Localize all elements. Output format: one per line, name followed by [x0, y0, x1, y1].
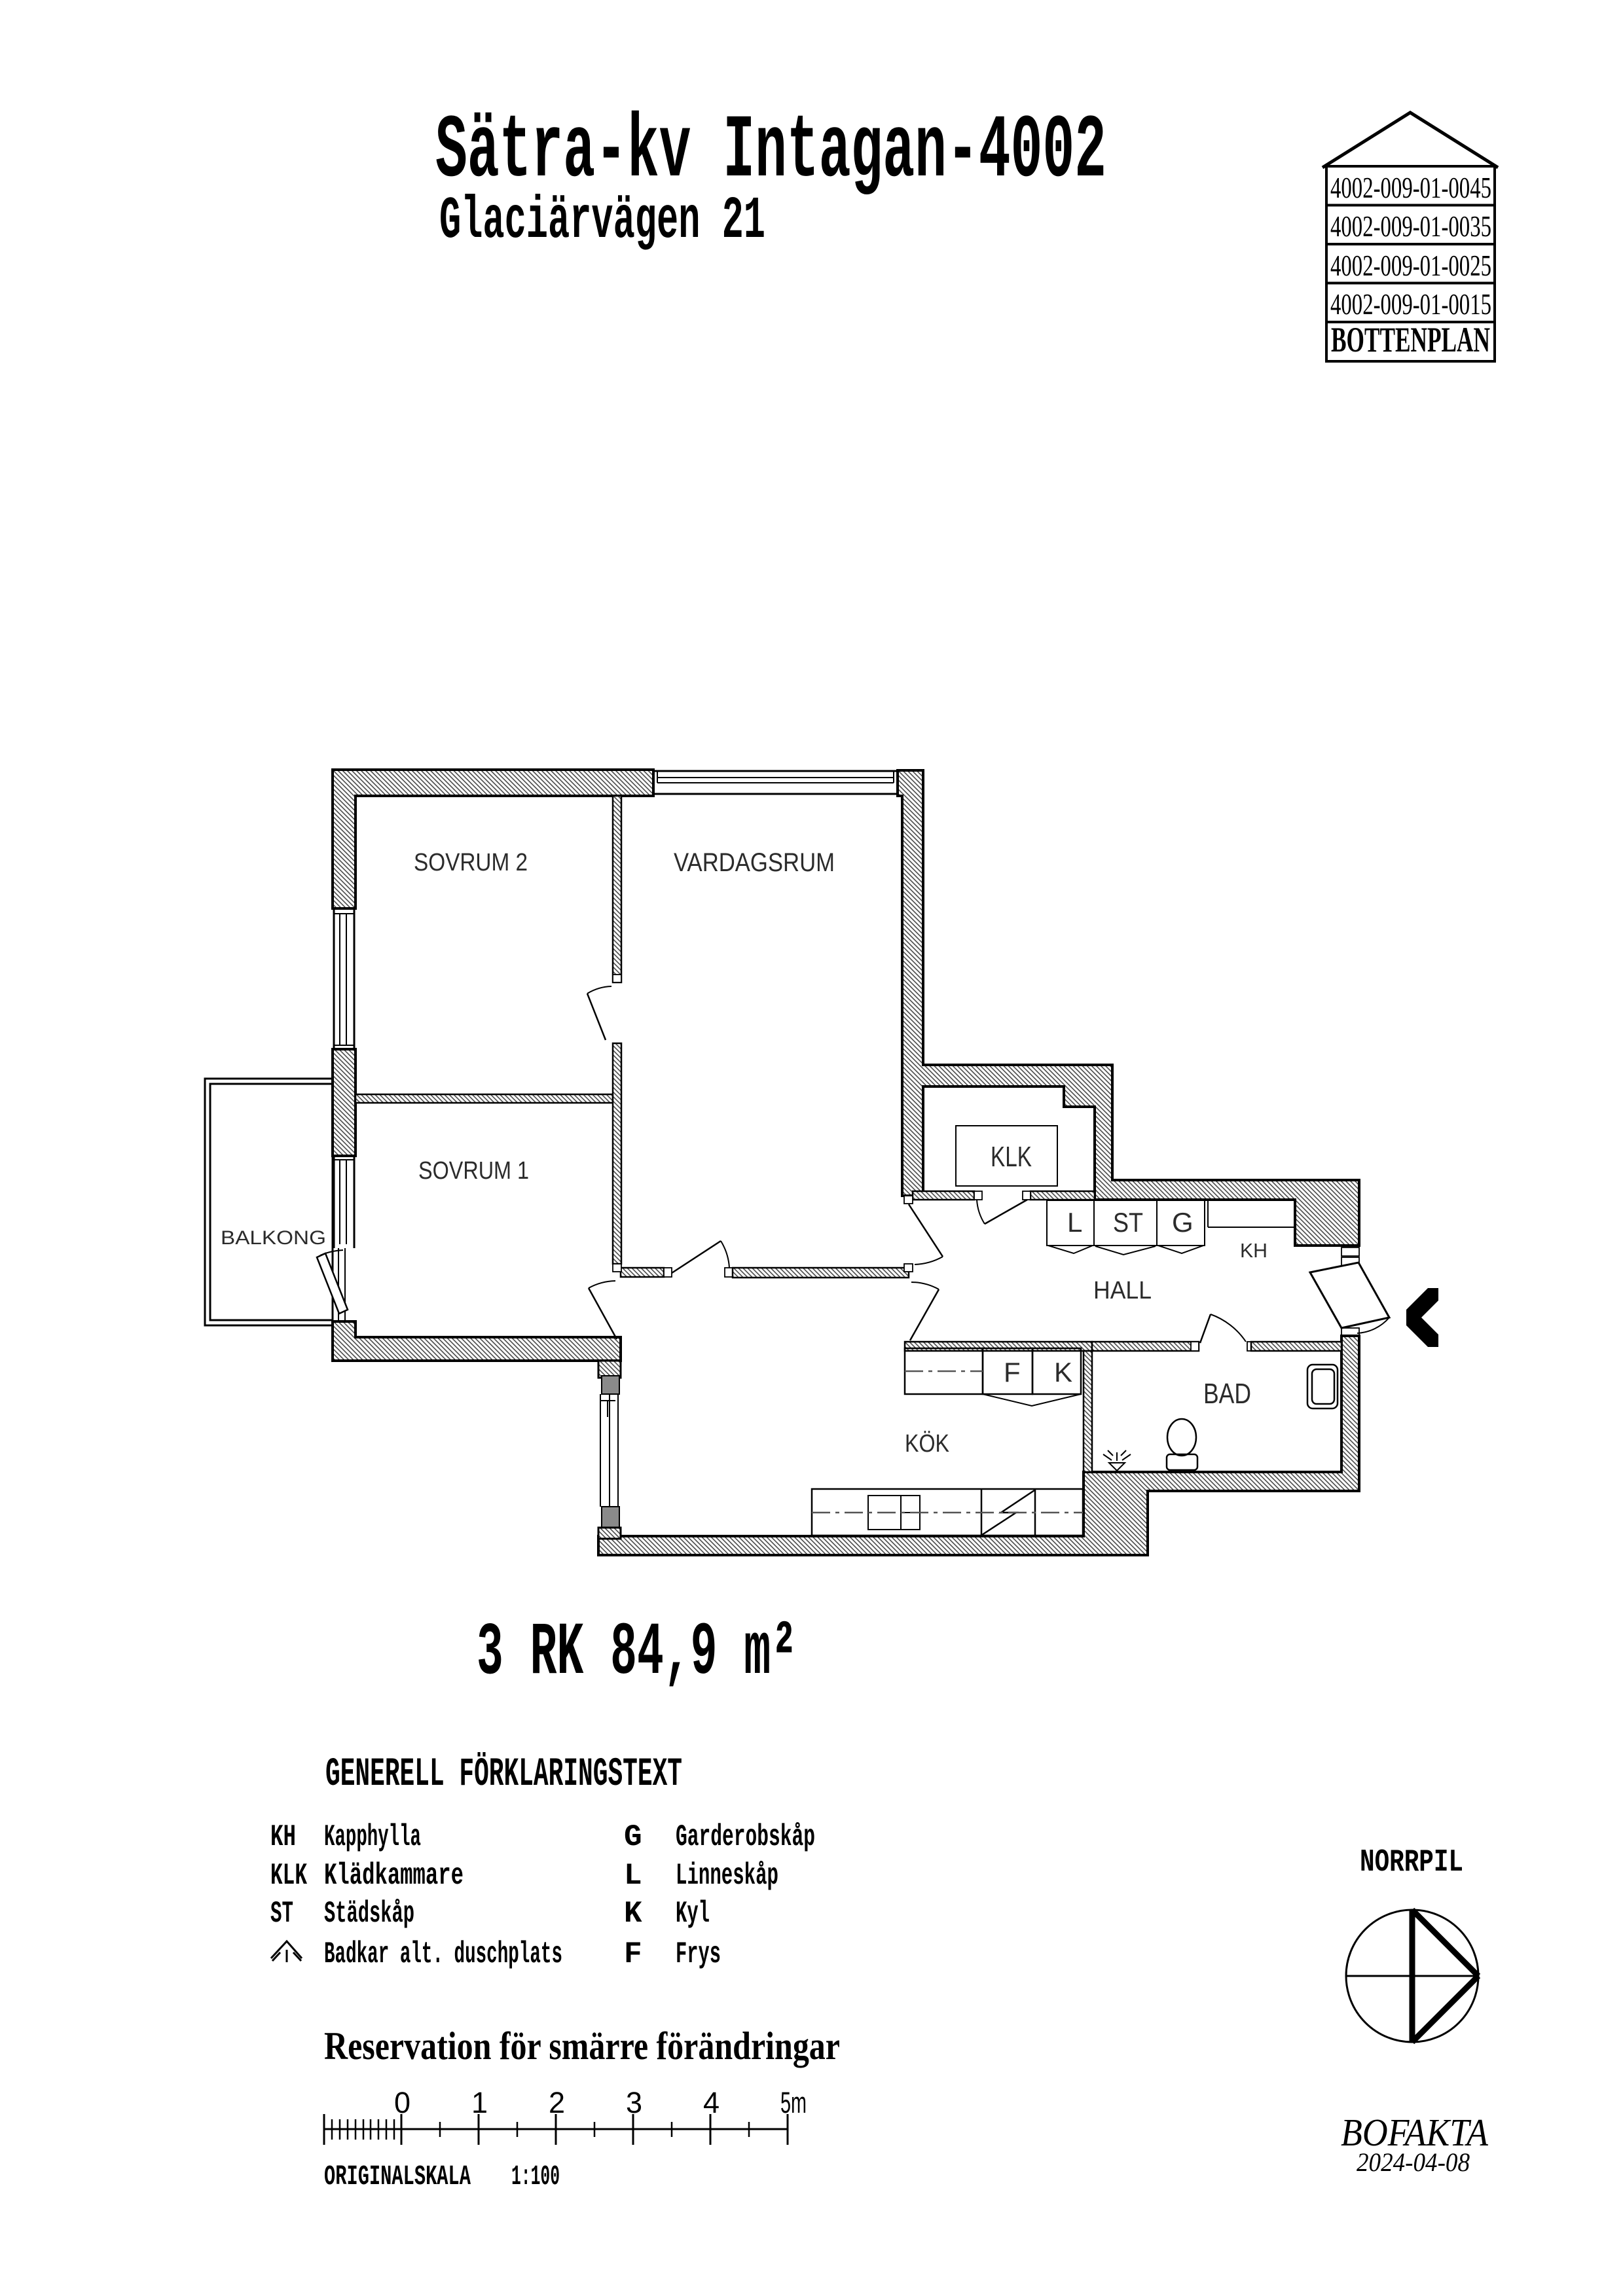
- svg-text:Klädkammare: Klädkammare: [324, 1859, 464, 1893]
- svg-text:BAD: BAD: [1203, 1378, 1251, 1410]
- svg-text:BOTTENPLAN: BOTTENPLAN: [1331, 320, 1490, 359]
- svg-text:K: K: [1054, 1357, 1072, 1388]
- svg-text:GENERELL FÖRKLARINGSTEXT: GENERELL FÖRKLARINGSTEXT: [325, 1752, 682, 1797]
- svg-text:KÖK: KÖK: [905, 1430, 949, 1458]
- svg-text:Reservation för smärre förändr: Reservation för smärre förändringar: [324, 2024, 840, 2068]
- svg-text:Kyl: Kyl: [676, 1897, 710, 1931]
- svg-text:KLK: KLK: [991, 1141, 1032, 1173]
- svg-text:F: F: [1004, 1357, 1021, 1388]
- svg-text:2: 2: [549, 2086, 565, 2119]
- svg-text:3: 3: [626, 2086, 642, 2119]
- svg-text:HALL: HALL: [1093, 1277, 1152, 1304]
- svg-text:Städskåp: Städskåp: [324, 1897, 414, 1931]
- svg-text:1:100: 1:100: [511, 2161, 560, 2193]
- svg-text:3 RK 84,9 m²: 3 RK 84,9 m²: [477, 1611, 797, 1696]
- svg-text:5m: 5m: [780, 2086, 807, 2119]
- svg-text:F: F: [624, 1937, 642, 1971]
- svg-text:4002-009-01-0035: 4002-009-01-0035: [1330, 210, 1491, 243]
- svg-text:G: G: [624, 1820, 642, 1854]
- svg-text:1: 1: [471, 2086, 488, 2119]
- svg-text:ORIGINALSKALA: ORIGINALSKALA: [324, 2161, 471, 2193]
- svg-text:KH: KH: [1240, 1239, 1267, 1262]
- svg-text:Badkar alt. duschplats: Badkar alt. duschplats: [324, 1937, 562, 1971]
- svg-text:4002-009-01-0015: 4002-009-01-0015: [1330, 288, 1491, 321]
- svg-text:4002-009-01-0025: 4002-009-01-0025: [1330, 249, 1491, 282]
- svg-text:Frys: Frys: [676, 1937, 721, 1971]
- svg-text:KLK: KLK: [270, 1859, 307, 1893]
- svg-text:0: 0: [394, 2086, 410, 2119]
- svg-text:Garderobskåp: Garderobskåp: [676, 1820, 815, 1854]
- svg-text:ST: ST: [270, 1897, 293, 1931]
- svg-text:L: L: [624, 1859, 642, 1893]
- svg-text:SOVRUM 1: SOVRUM 1: [418, 1157, 529, 1185]
- svg-text:NORRPIL: NORRPIL: [1360, 1845, 1463, 1880]
- svg-text:4002-009-01-0045: 4002-009-01-0045: [1330, 171, 1491, 204]
- svg-text:2024-04-08: 2024-04-08: [1357, 2147, 1470, 2177]
- svg-text:Linneskåp: Linneskåp: [676, 1859, 778, 1893]
- svg-text:Glaciärvägen 21: Glaciärvägen 21: [439, 188, 765, 255]
- svg-text:ST: ST: [1113, 1207, 1143, 1238]
- svg-text:KH: KH: [270, 1820, 296, 1854]
- svg-text:G: G: [1172, 1207, 1194, 1238]
- svg-text:L: L: [1067, 1207, 1082, 1238]
- svg-text:VARDAGSRUM: VARDAGSRUM: [674, 848, 835, 877]
- svg-text:SOVRUM 2: SOVRUM 2: [414, 849, 528, 876]
- svg-text:BALKONG: BALKONG: [221, 1227, 326, 1249]
- svg-text:K: K: [624, 1897, 642, 1931]
- svg-text:4: 4: [703, 2086, 720, 2119]
- svg-text:Kapphylla: Kapphylla: [324, 1820, 421, 1854]
